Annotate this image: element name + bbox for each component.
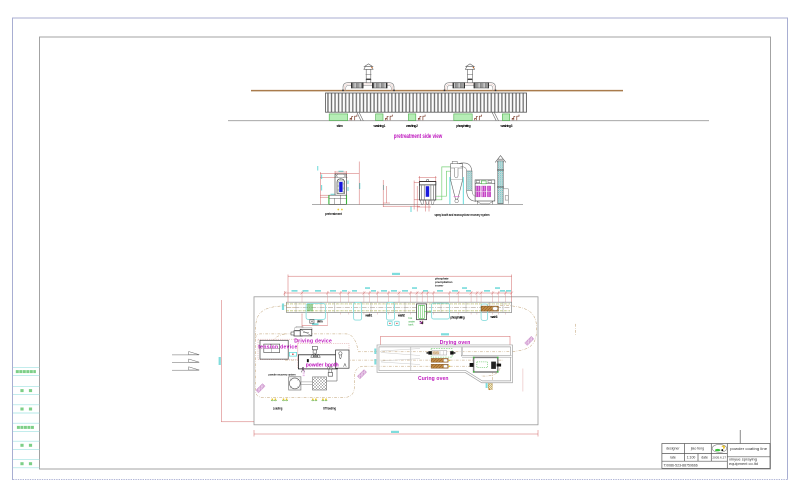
svg-text:pretreatment side view: pretreatment side view xyxy=(394,133,443,140)
svg-text:T:0086-523-88759666: T:0086-523-88759666 xyxy=(664,463,698,467)
svg-text:date: date xyxy=(701,456,708,460)
svg-text:jiao feng: jiao feng xyxy=(690,447,704,451)
svg-text:phosphating: phosphating xyxy=(456,124,471,128)
svg-text:skim: skim xyxy=(336,124,343,128)
svg-text:wash2: wash2 xyxy=(397,313,405,317)
svg-text:wash3: wash3 xyxy=(490,315,498,319)
svg-text:washing 2: washing 2 xyxy=(405,124,418,128)
svg-text:powder booth: powder booth xyxy=(306,362,339,368)
svg-text:Driving device: Driving device xyxy=(294,339,332,345)
svg-text:Drying oven: Drying oven xyxy=(440,340,471,346)
svg-text:washing 1: washing 1 xyxy=(373,124,386,128)
svg-text:tower: tower xyxy=(435,284,444,288)
svg-text:washing 3: washing 3 xyxy=(500,124,513,128)
svg-text:pretreatment: pretreatment xyxy=(325,212,343,216)
svg-text:Curing oven: Curing oven xyxy=(418,376,449,382)
svg-text:powder coating line: powder coating line xyxy=(730,446,768,451)
svg-text:spray booth and monocyclone re: spray booth and monocyclone recovery sys… xyxy=(435,213,490,217)
svg-text:rate: rate xyxy=(670,456,676,460)
svg-text:skim: skim xyxy=(317,320,323,324)
svg-text:equipment co.ltd: equipment co.ltd xyxy=(729,461,758,466)
svg-text:wash1: wash1 xyxy=(364,313,372,317)
svg-text:2005.6.27: 2005.6.27 xyxy=(712,456,726,460)
svg-text:Loading: Loading xyxy=(273,407,283,411)
svg-text:1:100: 1:100 xyxy=(687,456,696,460)
svg-text:tank: tank xyxy=(408,323,414,327)
svg-text:powder recovery system: powder recovery system xyxy=(269,372,296,376)
svg-text:designer: designer xyxy=(666,447,680,451)
svg-text:phosphating: phosphating xyxy=(450,315,464,319)
svg-text:Off loading: Off loading xyxy=(323,407,336,411)
svg-text:tension device: tension device xyxy=(258,344,297,350)
